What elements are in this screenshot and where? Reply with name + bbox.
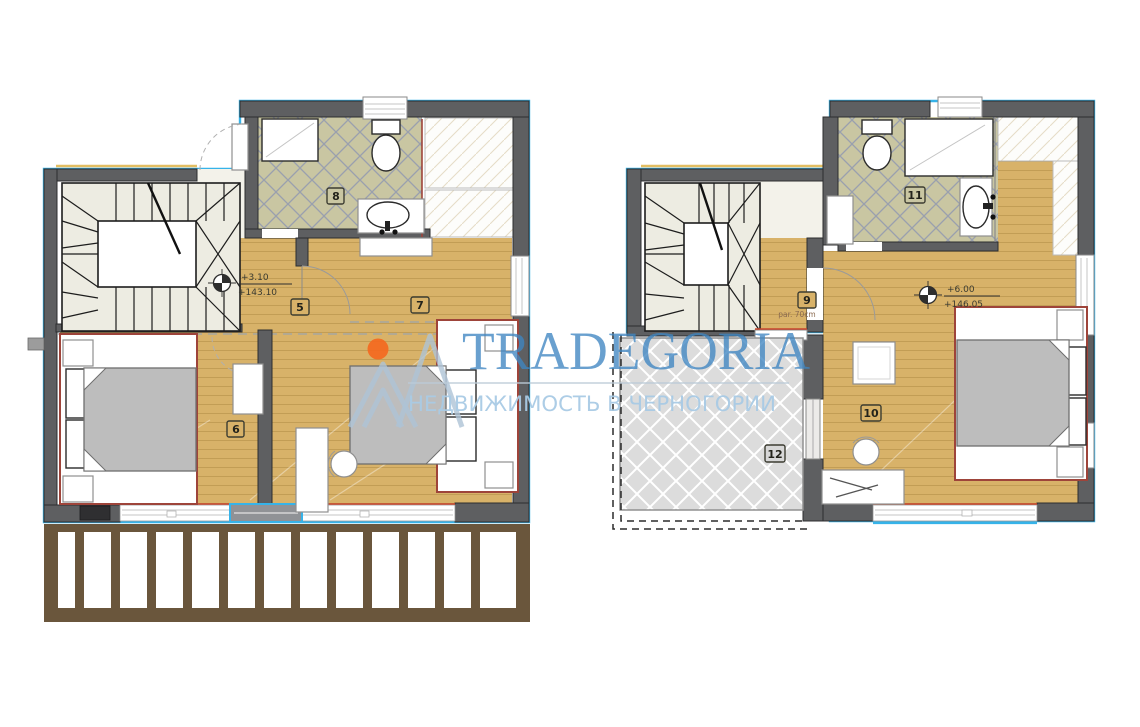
faucet-spout — [983, 203, 993, 209]
window-right-left-plan — [511, 256, 529, 316]
entry-door-left — [200, 124, 248, 170]
floor-plan-right: +6.00 +146.05 par. 70cm 9 10 11 12 — [613, 97, 1094, 529]
room-label-12: 12 — [767, 448, 782, 461]
floor-plan-left: +3.10 +143.10 5 6 7 8 — [28, 97, 530, 622]
toilet-cistern — [862, 120, 892, 134]
logo-orange-dot — [368, 339, 389, 360]
toilet-cistern — [372, 120, 400, 134]
room-label-8: 8 — [332, 190, 340, 203]
room-label-9: 9 — [803, 294, 811, 307]
balcony — [44, 524, 530, 622]
toilet-bowl — [372, 135, 400, 171]
bed-room-6 — [60, 334, 197, 504]
bed-room-10 — [955, 307, 1087, 480]
window-handle — [962, 510, 972, 516]
floor-plans-canvas: +3.10 +143.10 5 6 7 8 — [0, 0, 1140, 727]
elevation-relative-right: +6.00 — [947, 285, 975, 295]
nightstand — [485, 462, 513, 488]
nightstand — [63, 340, 93, 366]
mattress — [957, 340, 1069, 446]
window-top-right-plan — [938, 97, 982, 117]
room-label-6: 6 — [232, 423, 240, 436]
window-handle — [167, 511, 176, 517]
bottom-glazing-left — [120, 504, 455, 522]
nightstand — [63, 476, 93, 502]
pillow — [1068, 347, 1086, 395]
bathroom-8-door-opening — [262, 229, 298, 238]
faucet-dot — [392, 229, 397, 234]
faucet-dot — [990, 194, 995, 199]
bathroom-door-leaf — [827, 196, 853, 244]
room-label-10: 10 — [863, 407, 879, 420]
toilet-bowl — [863, 136, 891, 170]
watermark-tagline: НЕДВИЖИМОСТЬ В ЧЕРНОГОРИИ — [408, 392, 776, 416]
balcony-posts — [75, 532, 480, 608]
floor-plan-drawing: +3.10 +143.10 5 6 7 8 — [0, 0, 1140, 727]
stair-landing-right — [760, 181, 830, 238]
desk — [296, 428, 328, 512]
faucet-dot — [379, 229, 384, 234]
nightstand — [1057, 310, 1083, 340]
room-label-5: 5 — [296, 301, 304, 314]
cabinet-square — [853, 342, 895, 384]
shelf-under-sink — [360, 238, 432, 256]
watermark-brand: TRADEGORIA — [462, 321, 810, 381]
elevation-absolute-right: +146.05 — [944, 300, 983, 310]
elevation-absolute-left: +143.10 — [238, 288, 277, 298]
room-label-11: 11 — [907, 189, 922, 202]
chair-seat — [853, 439, 879, 465]
faucet-spout — [385, 221, 390, 231]
staircase-left — [62, 183, 240, 331]
pillow — [1068, 398, 1086, 445]
window-top-left-plan — [363, 97, 407, 119]
shelf-unit — [233, 364, 263, 414]
elevation-relative-left: +3.10 — [241, 273, 269, 283]
window-handle — [360, 511, 369, 517]
stair-void-left — [98, 221, 196, 287]
bottom-glazing-right — [873, 504, 1037, 523]
mattress — [84, 368, 196, 471]
parapet-note: par. 70cm — [778, 310, 816, 319]
chair-seat — [331, 451, 357, 477]
stair-void-right — [684, 223, 728, 285]
closet-left — [425, 118, 513, 237]
nightstand — [1057, 447, 1083, 477]
room-label-7: 7 — [416, 299, 424, 312]
staircase-right — [645, 183, 760, 331]
wood-floor-closet-strip — [998, 161, 1053, 252]
faucet-dot — [990, 214, 995, 219]
